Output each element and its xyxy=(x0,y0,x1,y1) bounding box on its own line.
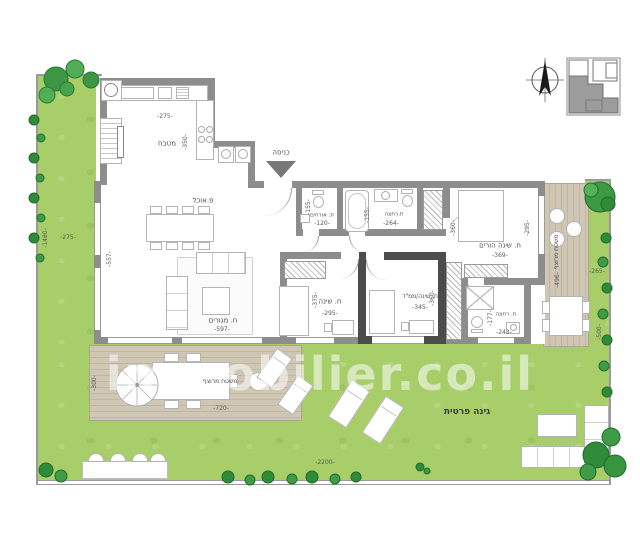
garden-right-width-dim: -265- xyxy=(589,269,605,275)
garden-right-depth-dim: -500- xyxy=(597,324,603,340)
garden-label: גינה פרטית xyxy=(444,407,490,417)
kitchen-depth-dim: -350- xyxy=(183,134,189,150)
deck-right-label: משטח מרוצף xyxy=(554,235,560,270)
tree-top-left xyxy=(39,60,99,103)
deck-left-label: משטח מרוצף xyxy=(203,379,238,385)
garden-width-dim: -2200- xyxy=(315,460,335,466)
parents-bathroom-depth-dim: -177- xyxy=(488,310,494,326)
guest-wc-width-dim: -120- xyxy=(314,221,330,227)
bedroom-depth-dim: -375- xyxy=(313,292,319,308)
deck-left-width-dim: -720- xyxy=(213,406,229,412)
deck-right-depth-dim: -496- xyxy=(555,272,561,288)
parents-bedroom-depth-left-dim: -360- xyxy=(451,220,457,236)
bedroom-width-dim: -295- xyxy=(322,311,338,317)
bathroom-width-dim: -264- xyxy=(383,221,399,227)
living-width-dim: -597- xyxy=(214,327,230,333)
bedroom-label: ח. שינה xyxy=(319,299,342,306)
living-label: ח. מגורים xyxy=(209,318,238,325)
dining-label: פ.אוכל xyxy=(193,198,214,205)
kitchen-width-dim: -275- xyxy=(157,114,173,120)
north-compass-icon xyxy=(523,56,567,106)
deck-left-depth-dim: -300- xyxy=(92,375,98,391)
parents-bedroom-depth-right-dim: -295- xyxy=(525,220,531,236)
entrance-label: כניסה xyxy=(272,150,289,157)
parents-bathroom-label: ת. רחצה xyxy=(496,312,517,318)
living-depth-dim: -557- xyxy=(107,251,113,267)
guest-wc-label: ת. אורחים xyxy=(310,213,334,219)
parents-bathroom-width-dim: -243- xyxy=(496,330,512,336)
garden-left-depth-dim: -1480- xyxy=(43,228,49,248)
tree-top-right xyxy=(584,182,615,212)
safe-room-width-dim: -345- xyxy=(412,305,428,311)
garden-left-width-dim: -275- xyxy=(60,235,76,241)
bushes-bottom-right xyxy=(580,428,626,480)
shrubs-right-edge xyxy=(598,233,612,397)
parents-bedroom-width-dim: -369- xyxy=(492,253,508,259)
safe-room-depth-dim: -360- xyxy=(430,290,436,306)
bathroom-depth-dim: -155- xyxy=(365,207,371,223)
guest-wc-depth-dim: -155- xyxy=(306,199,312,215)
floor-plan: מטבח -275- -350- פ.אוכל ח. מגורים -597- … xyxy=(0,0,640,560)
kitchen-label: מטבח xyxy=(158,141,176,148)
parents-bedroom-label: ח. שינה הורים xyxy=(479,243,521,250)
key-plan xyxy=(566,50,622,118)
bathroom-label: ת.רחצה xyxy=(385,212,404,218)
shrubs-bottom-edge xyxy=(39,463,430,485)
